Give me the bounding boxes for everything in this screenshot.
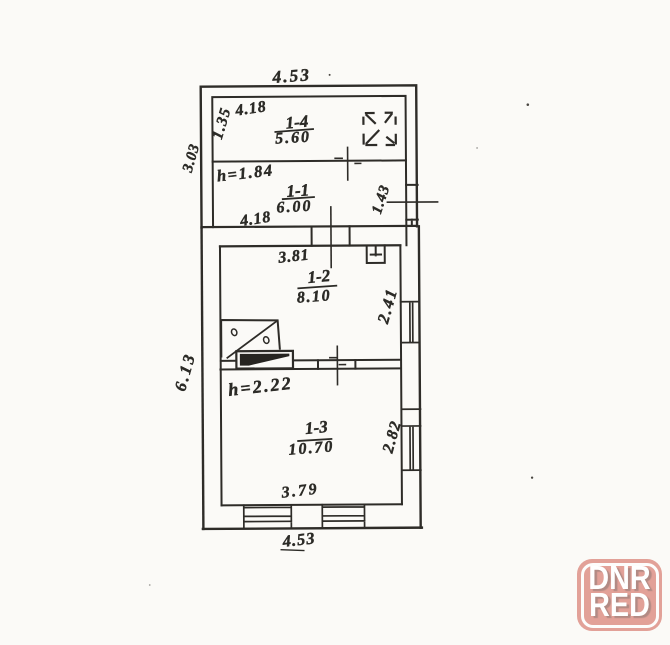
svg-text:5.60: 5.60 [275, 129, 312, 148]
svg-text:1-3: 1-3 [304, 417, 329, 438]
svg-text:3.79: 3.79 [280, 481, 320, 502]
svg-text:2.41: 2.41 [373, 286, 401, 327]
svg-text:10.70: 10.70 [288, 438, 335, 458]
svg-text:3.81: 3.81 [276, 246, 310, 266]
svg-text:h=1.84: h=1.84 [216, 160, 275, 185]
svg-text:8.10: 8.10 [296, 287, 332, 307]
svg-text:1-2: 1-2 [307, 266, 332, 287]
svg-text:1.43: 1.43 [369, 183, 393, 216]
svg-text:6.13: 6.13 [170, 350, 199, 393]
svg-text:3.03: 3.03 [180, 142, 203, 175]
svg-text:4.53: 4.53 [281, 528, 317, 551]
svg-text:6.00: 6.00 [276, 198, 313, 217]
svg-text:4.18: 4.18 [233, 98, 267, 119]
svg-text:4.53: 4.53 [271, 64, 312, 87]
svg-text:h=2.22: h=2.22 [227, 373, 294, 400]
